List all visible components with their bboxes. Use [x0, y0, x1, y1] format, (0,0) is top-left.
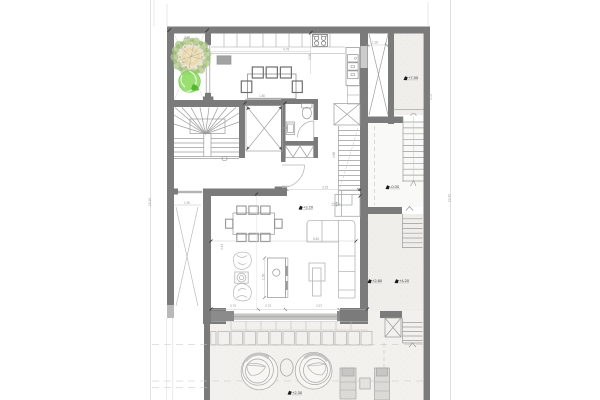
- svg-text:+2.30: +2.30: [292, 390, 303, 395]
- svg-text:1.90: 1.90: [184, 201, 190, 205]
- svg-text:1.80: 1.80: [259, 94, 265, 98]
- svg-text:2.36: 2.36: [184, 36, 190, 40]
- svg-text:6.84: 6.84: [313, 237, 319, 241]
- svg-text:3.06: 3.06: [308, 54, 312, 60]
- svg-text:+7.90: +7.90: [408, 75, 419, 80]
- svg-text:4.44: 4.44: [220, 244, 224, 250]
- svg-text:19.42: 19.42: [448, 194, 452, 202]
- svg-text:0.70: 0.70: [230, 304, 236, 308]
- svg-text:4.75: 4.75: [283, 48, 289, 52]
- svg-text:2.97: 2.97: [316, 304, 322, 308]
- svg-text:3.15: 3.15: [322, 186, 328, 190]
- svg-text:1.30: 1.30: [372, 41, 378, 45]
- svg-text:15.10: 15.10: [148, 198, 152, 206]
- svg-text:1.56: 1.56: [262, 274, 266, 280]
- svg-text:+4.20: +4.20: [399, 278, 410, 283]
- svg-text:+2.80: +2.80: [372, 278, 383, 283]
- svg-text:4.66: 4.66: [332, 152, 336, 158]
- svg-text:2.70: 2.70: [265, 304, 271, 308]
- svg-text:-0.00: -0.00: [390, 184, 400, 189]
- svg-text:+3.20: +3.20: [303, 205, 314, 210]
- svg-text:4.70: 4.70: [429, 94, 433, 100]
